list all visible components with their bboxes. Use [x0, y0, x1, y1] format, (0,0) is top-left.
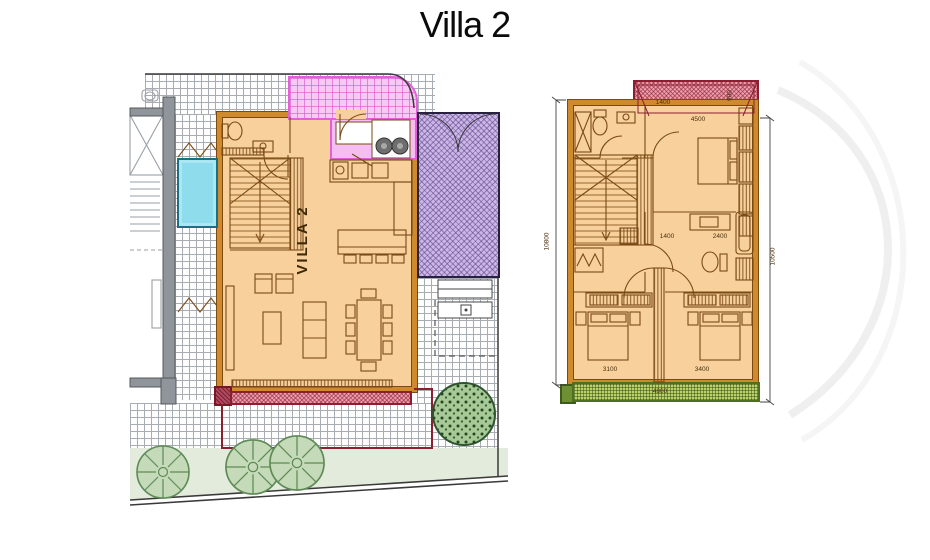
dim-bedroom-right: 3400: [684, 366, 720, 373]
wardrobe-left: [586, 293, 652, 307]
tree-icon: [270, 436, 324, 490]
floor-plan-canvas: Villa 2: [0, 0, 930, 560]
outdoor-utility: [438, 280, 492, 318]
sofa: [226, 286, 234, 370]
dim-bedroom-left: 3100: [592, 366, 628, 373]
outdoor-kitchen-appliances: [336, 120, 410, 158]
watermark-curves: [778, 62, 903, 440]
dim-hall: 1400: [650, 233, 684, 240]
dim-height-left: 10800: [544, 222, 551, 262]
first-floor-interior: [573, 105, 753, 382]
tree-icon: [137, 446, 189, 498]
dim-balcony-depth: 900: [727, 82, 734, 110]
dim-balcony-width: 1400: [645, 99, 681, 106]
plan-linework: [0, 0, 930, 560]
dim-height-right: 10500: [770, 237, 777, 277]
stairs-ground: [230, 158, 290, 248]
dim-terrace-width: 4800: [640, 388, 680, 395]
dining-table: [346, 289, 392, 371]
garage-door-arcs: [420, 114, 496, 152]
wardrobe-right: [684, 293, 750, 307]
dim-bath: 2400: [703, 233, 737, 240]
coffee-table: [263, 312, 281, 344]
bed-right: [688, 312, 752, 360]
neighbour-unit-lines: [130, 90, 163, 328]
sectional-sofa: [303, 302, 326, 358]
unit-label: VILLA 2: [294, 200, 310, 280]
bed-left: [576, 312, 640, 360]
bed-top: [698, 138, 737, 184]
bush-icon: [433, 383, 495, 445]
dim-bedroom-top: 4500: [678, 116, 718, 123]
